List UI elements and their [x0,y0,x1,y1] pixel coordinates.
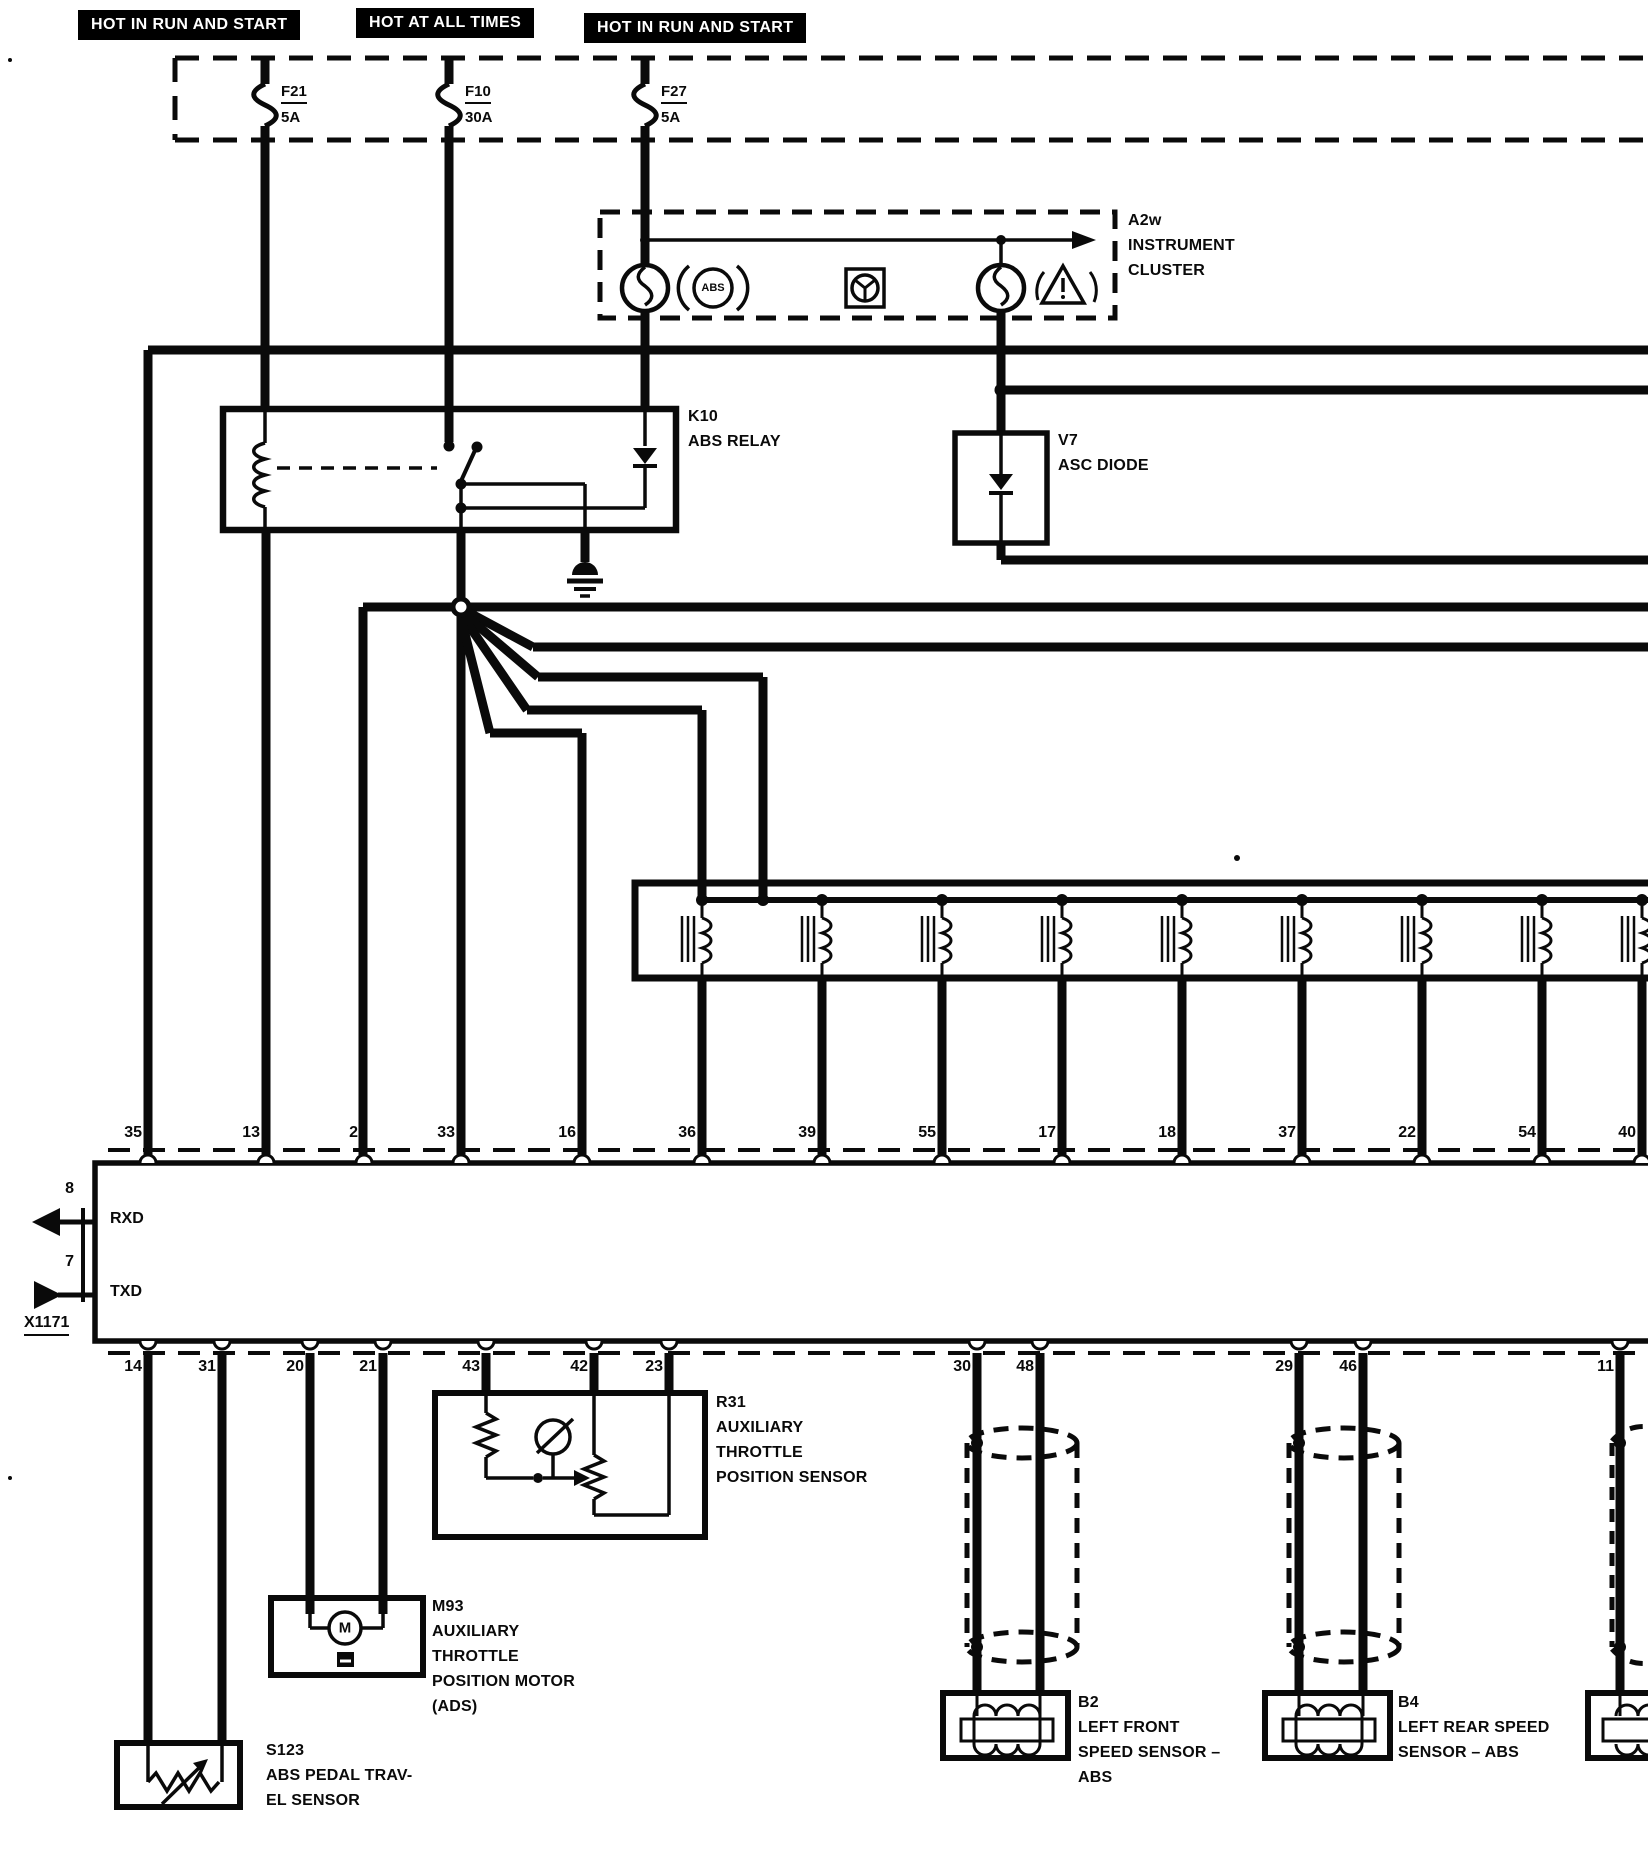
cluster-label-line: CLUSTER [1128,258,1235,283]
throttle_motor-label-line: AUXILIARY [432,1619,575,1644]
pin-7-label: 7 [52,1253,74,1271]
module-bottom-pin-label: 14 [96,1358,142,1376]
speed_sensor_lf-label-line: LEFT FRONT [1078,1715,1220,1740]
valve-solenoid-coils [682,894,1648,1163]
throttle_sensor-label: R31AUXILIARYTHROTTLEPOSITION SENSOR [716,1390,867,1490]
throttle-motor-box [271,1598,423,1675]
fuse-symbols [254,84,657,126]
speed-sensor-lr-box [1265,1428,1399,1758]
asc-diode-icon [989,474,1013,490]
asc_diode-label-line: V7 [1058,428,1149,453]
rxd-arrow-icon [32,1208,60,1236]
module-top-pin-label: 37 [1250,1124,1296,1142]
schematic-artwork [0,0,1648,1868]
module-bottom-pin-label: 48 [988,1358,1034,1376]
module-bottom-pin-label: 31 [170,1358,216,1376]
speed_sensor_lf-label-line: B2 [1078,1690,1220,1715]
pedal_sensor-label-line: S123 [266,1738,412,1763]
fuse-rating: 5A [661,110,687,125]
speed_sensor_lr-label-line: B4 [1398,1690,1549,1715]
fan-c [464,614,763,897]
throttle_sensor-label-line: R31 [716,1390,867,1415]
warning-triangle-icon [1037,266,1097,303]
module-bottom-pin-label: 11 [1568,1358,1614,1376]
power-banner: HOT IN RUN AND START [78,10,300,40]
module-top-pin-label: 18 [1130,1124,1176,1142]
pickup-coil-icon [1296,1705,1362,1716]
resistor-icon [476,1413,496,1457]
throttle_motor-label-line: (ADS) [432,1694,575,1719]
module-bottom-pin-label: 30 [925,1358,971,1376]
throttle_motor-label-line: M93 [432,1594,575,1619]
speed-sensor-lf-box [943,1428,1077,1758]
module-top-pin-label: 22 [1370,1124,1416,1142]
fuse-label-f27: F27 5A [661,84,687,125]
module-top-pin-label: 39 [770,1124,816,1142]
abs-module-box [95,1150,1648,1353]
asc-diode-box [955,433,1047,543]
rxd-label: RXD [110,1210,144,1228]
module-bottom-pin-label: 20 [258,1358,304,1376]
fuse-id: F10 [465,84,491,104]
pickup-coil-icon [974,1705,1040,1716]
pin-8-label: 8 [52,1180,74,1198]
module-top-pin-label: 2 [312,1124,358,1142]
asc_diode-label-line: ASC DIODE [1058,453,1149,478]
throttle_motor-label: M93AUXILIARYTHROTTLEPOSITION MOTOR(ADS) [432,1594,575,1719]
throttle_motor-label-line: THROTTLE [432,1644,575,1669]
pedal_sensor-label-line: EL SENSOR [266,1788,412,1813]
speed_sensor_lr-label: B4LEFT REAR SPEEDSENSOR – ABS [1398,1690,1549,1765]
fuse-f10-icon [438,84,461,126]
txd-label: TXD [110,1283,142,1301]
power-banner: HOT AT ALL TIMES [356,8,534,38]
txd-arrow-icon [34,1281,62,1309]
splice-junction-icon [453,599,469,615]
speed_sensor_lr-label-line: LEFT REAR SPEED [1398,1715,1549,1740]
instrument-cluster-box [600,212,1115,318]
speed_sensor_lf-label-line: SPEED SENSOR – [1078,1740,1220,1765]
module-top-pin-label: 33 [409,1124,455,1142]
fuse-rating: 5A [281,110,307,125]
fuse-f27-icon [634,84,657,126]
fuse-id: F21 [281,84,307,104]
module-bottom-pin-label: 21 [331,1358,377,1376]
pin-connector-notches [140,1155,1648,1349]
fan-left-pin2 [363,607,453,1163]
cluster-label-line: A2w [1128,208,1235,233]
motor-letter: M [339,1620,352,1637]
abs-badge-text: ABS [701,282,724,294]
throttle_sensor-label-line: AUXILIARY [716,1415,867,1440]
module-bottom-pin-label: 23 [617,1358,663,1376]
pedal_sensor-label-line: ABS PEDAL TRAV- [266,1763,412,1788]
wiring-diagram-page: HOT IN RUN AND START HOT AT ALL TIMES HO… [0,0,1648,1868]
fuse-rating: 30A [465,110,493,125]
cluster-label-line: INSTRUMENT [1128,233,1235,258]
fuse-id: F27 [661,84,687,104]
module-bottom-pin-label: 29 [1247,1358,1293,1376]
throttle_motor-label-line: POSITION MOTOR [432,1669,575,1694]
module-bottom-pin-label: 43 [434,1358,480,1376]
relay-diode-icon [633,448,657,464]
connector-x1171-label: X1171 [24,1314,69,1336]
fuse-label-f21: F21 5A [281,84,307,125]
cluster-arrowhead-icon [1072,231,1096,249]
throttle-sensor-box [435,1393,705,1537]
module-top-pin-label: 54 [1490,1124,1536,1142]
module-top-pin-label: 40 [1590,1124,1636,1142]
relay-label: K10ABS RELAY [688,404,781,454]
cluster-label: A2wINSTRUMENTCLUSTER [1128,208,1235,283]
speed_sensor_lr-label-line: SENSOR – ABS [1398,1740,1549,1765]
fuse-label-f10: F10 30A [465,84,493,125]
power-banner: HOT IN RUN AND START [584,13,806,43]
module-bottom-pin-label: 46 [1311,1358,1357,1376]
pedal_sensor-label: S123ABS PEDAL TRAV-EL SENSOR [266,1738,412,1813]
module-bottom-pin-label: 42 [542,1358,588,1376]
asc_diode-label: V7ASC DIODE [1058,428,1149,478]
module-top-pin-label: 17 [1010,1124,1056,1142]
module-top-pin-label: 16 [530,1124,576,1142]
throttle_sensor-label-line: THROTTLE [716,1440,867,1465]
ground-icon [567,562,603,596]
fan-b [466,611,1648,647]
fuse-f21-icon [254,84,277,126]
relay-label-line: ABS RELAY [688,429,781,454]
valve-block-box [635,883,1648,978]
module-top-pin-label: 13 [214,1124,260,1142]
speed_sensor_lf-label: B2LEFT FRONTSPEED SENSOR –ABS [1078,1690,1220,1790]
throttle_sensor-label-line: POSITION SENSOR [716,1465,867,1490]
speed_sensor_lf-label-line: ABS [1078,1765,1220,1790]
pedal-sensor-box [117,1743,240,1807]
module-top-pin-label: 36 [650,1124,696,1142]
fuse-panel-outline [175,58,1648,140]
relay-label-line: K10 [688,404,781,429]
asc-lamp-icon [846,269,884,307]
module-top-pin-label: 55 [890,1124,936,1142]
relay-coil-icon [254,443,265,507]
module-top-pin-label: 35 [96,1124,142,1142]
